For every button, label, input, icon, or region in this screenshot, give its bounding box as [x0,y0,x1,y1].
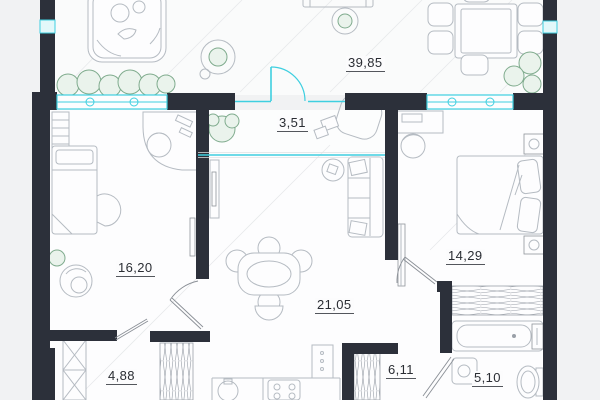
window [427,95,513,109]
tall-wardrobe-icon [398,224,405,286]
hallway-closet-icon [160,343,193,400]
floor-plan: 39,85 3,51 16,20 14,29 21,05 4,88 6,11 5… [0,0,600,400]
room-area-label-room-left: 16,20 [116,261,155,277]
room-area-label-balcony: 3,51 [277,116,308,132]
kitchen-cabinet-icon [312,345,333,378]
double-bed-icon [457,156,543,234]
floor-plan-drawing [0,0,600,400]
room-area-label-corridor: 6,11 [386,363,416,379]
built-in-wardrobe-icon [452,286,543,315]
window [57,95,167,109]
nightstand-icon [524,134,544,154]
bathtub-icon [452,321,543,351]
nightstand-icon [524,236,544,254]
hot-tub-icon [88,0,166,62]
sofa-icon [348,157,383,237]
room-area-label-bedroom-right: 14,29 [446,249,485,265]
corridor-closet-icon [354,353,380,400]
room-area-label-living-kitchen: 21,05 [315,298,354,314]
mirror-icon [190,218,195,256]
room-area-label-bathroom: 5,10 [472,371,503,387]
stove-icon [268,380,300,400]
room-area-label-terrace: 39,85 [346,56,385,72]
hallway-wardrobe-icon [63,340,86,400]
room-area-label-hallway: 4,88 [106,369,137,385]
